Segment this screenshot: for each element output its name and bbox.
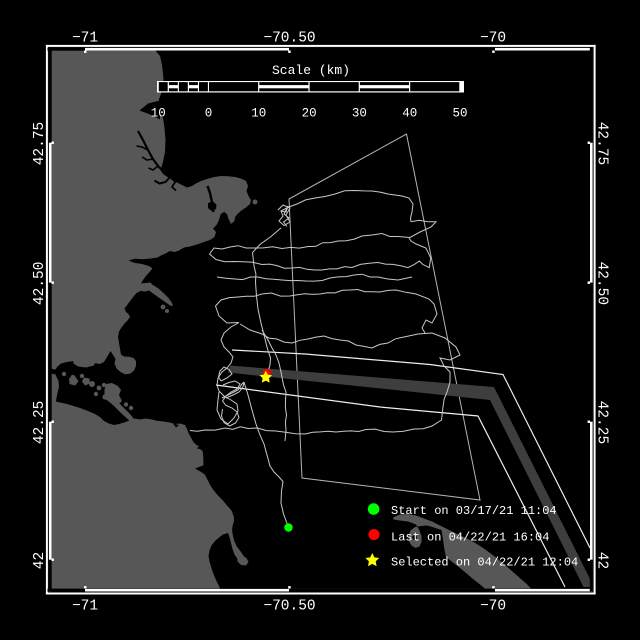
- svg-text:42.25: 42.25: [32, 401, 48, 445]
- svg-text:−71: −71: [72, 31, 98, 47]
- svg-text:Start on 03/17/21 11:04: Start on 03/17/21 11:04: [391, 504, 557, 518]
- svg-text:42.75: 42.75: [32, 122, 48, 166]
- svg-text:Last on 04/22/21 16:04: Last on 04/22/21 16:04: [391, 531, 549, 545]
- svg-text:10: 10: [251, 107, 266, 121]
- svg-text:10: 10: [151, 107, 166, 121]
- svg-text:42.50: 42.50: [594, 262, 610, 306]
- svg-text:42: 42: [32, 552, 48, 569]
- svg-text:20: 20: [302, 107, 317, 121]
- svg-text:40: 40: [402, 107, 417, 121]
- svg-text:42: 42: [594, 552, 610, 569]
- svg-text:−70.50: −70.50: [263, 598, 315, 614]
- svg-text:−70.50: −70.50: [263, 31, 315, 47]
- svg-text:50: 50: [452, 107, 467, 121]
- svg-text:42.75: 42.75: [594, 122, 610, 166]
- svg-text:Selected on 04/22/21 12:04: Selected on 04/22/21 12:04: [391, 556, 578, 570]
- svg-text:42.25: 42.25: [594, 401, 610, 445]
- svg-text:42.50: 42.50: [32, 262, 48, 306]
- svg-text:Scale (km): Scale (km): [272, 63, 350, 78]
- svg-text:−70: −70: [480, 598, 506, 614]
- svg-text:−70: −70: [480, 31, 506, 47]
- svg-text:−71: −71: [72, 598, 98, 614]
- svg-text:0: 0: [205, 107, 213, 121]
- svg-text:30: 30: [352, 107, 367, 121]
